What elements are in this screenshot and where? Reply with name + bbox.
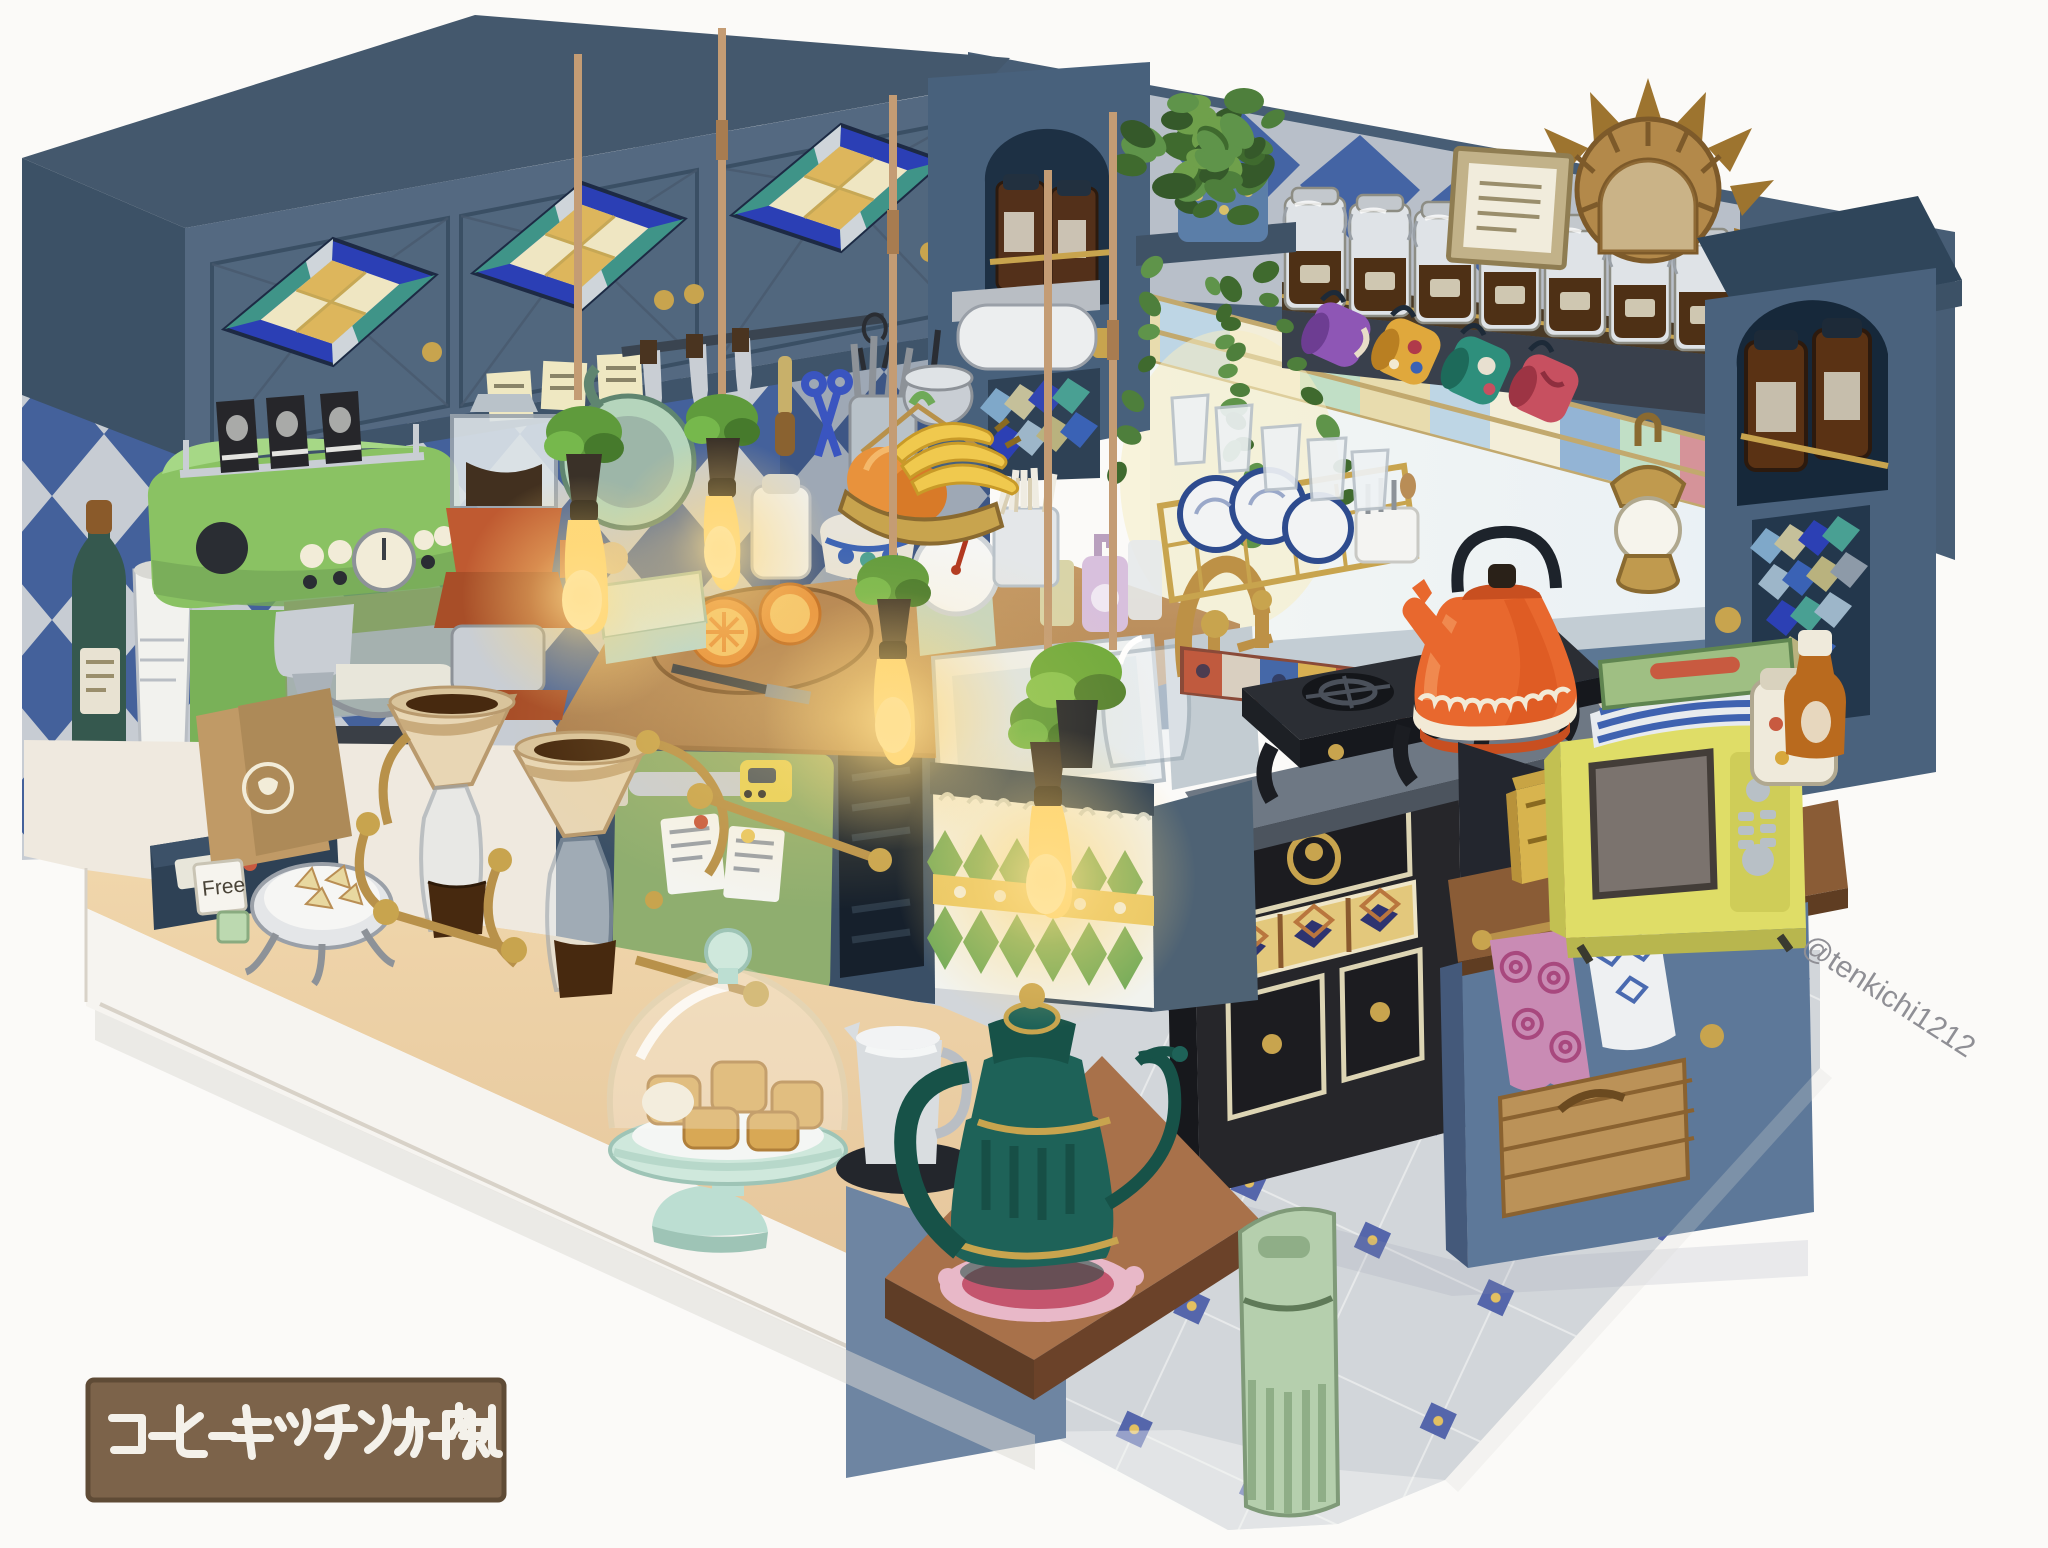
svg-text:Free: Free: [201, 873, 246, 900]
